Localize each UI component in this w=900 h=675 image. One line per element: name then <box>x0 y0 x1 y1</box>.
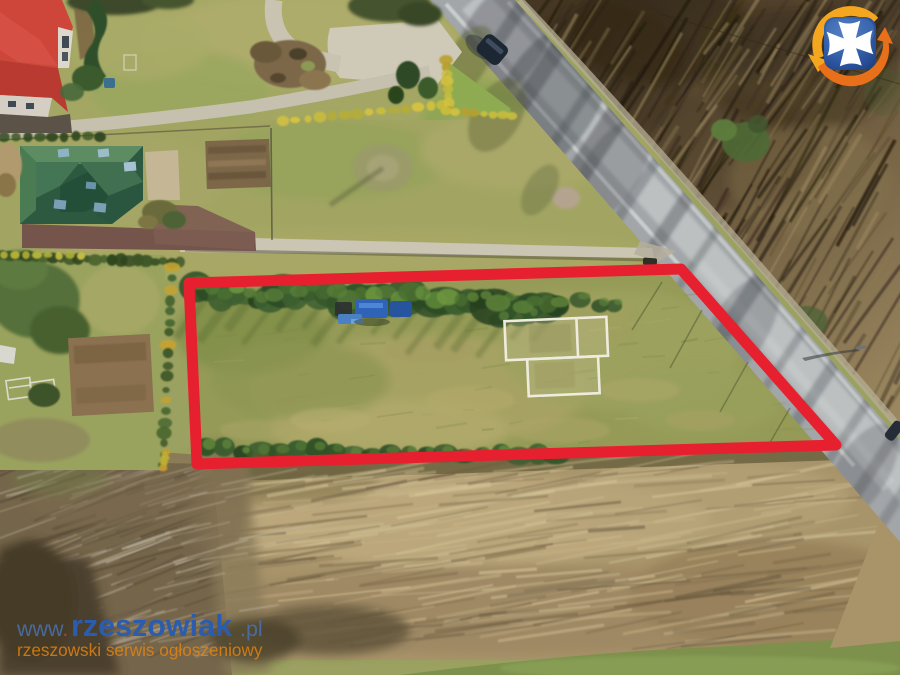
svg-text:rzeszowiak: rzeszowiak <box>71 609 232 643</box>
svg-text:rzeszowski serwis ogłoszeniowy: rzeszowski serwis ogłoszeniowy <box>17 640 263 660</box>
svg-text:.pl: .pl <box>240 617 263 641</box>
svg-text:www.: www. <box>16 617 68 641</box>
